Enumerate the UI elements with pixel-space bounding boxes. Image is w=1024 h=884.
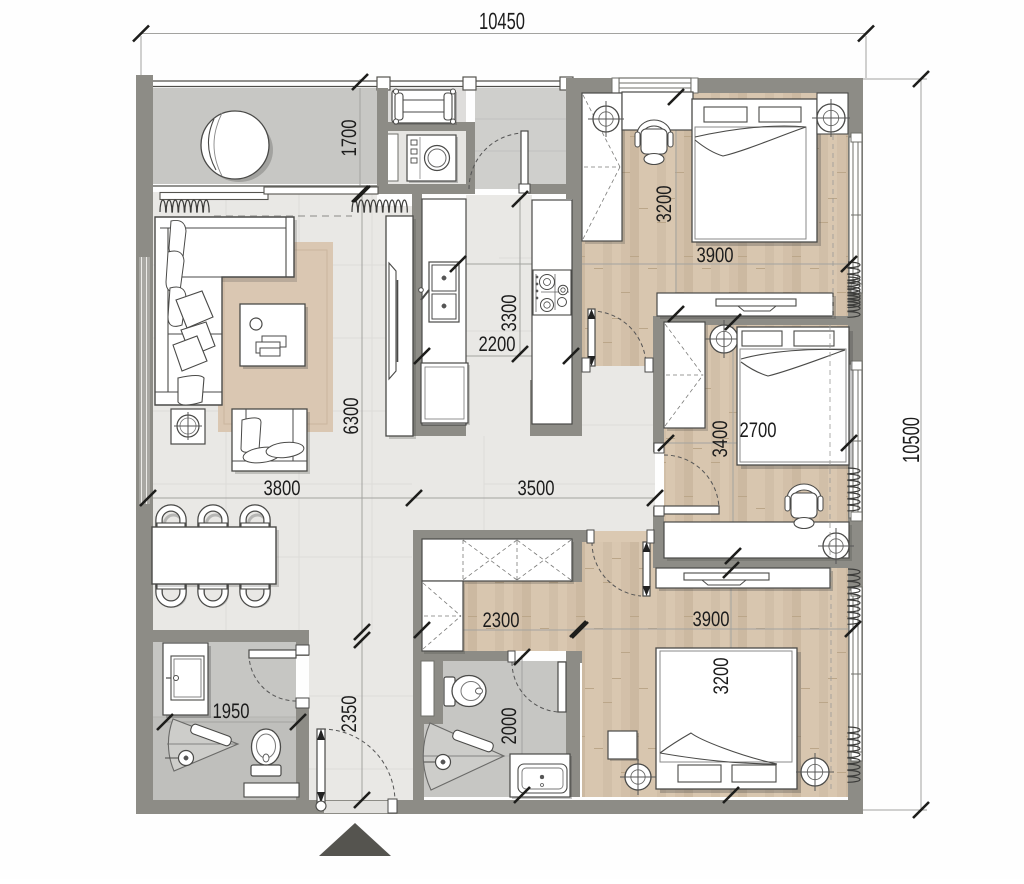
svg-text:3800: 3800 [264, 477, 301, 500]
svg-text:3200: 3200 [710, 658, 733, 695]
svg-text:3200: 3200 [653, 186, 676, 223]
svg-text:3900: 3900 [693, 608, 730, 631]
svg-text:1700: 1700 [338, 120, 361, 157]
svg-text:2000: 2000 [498, 708, 521, 745]
svg-text:6300: 6300 [340, 398, 363, 435]
svg-text:2350: 2350 [338, 696, 361, 733]
svg-text:2700: 2700 [740, 419, 777, 442]
svg-text:1950: 1950 [213, 700, 250, 723]
svg-text:10450: 10450 [479, 8, 525, 34]
svg-text:3300: 3300 [498, 295, 521, 332]
svg-text:3500: 3500 [518, 477, 555, 500]
svg-text:3400: 3400 [709, 421, 732, 458]
svg-text:2300: 2300 [483, 609, 520, 632]
svg-text:2200: 2200 [479, 333, 516, 356]
svg-text:3900: 3900 [697, 244, 734, 267]
svg-text:10500: 10500 [898, 417, 924, 463]
